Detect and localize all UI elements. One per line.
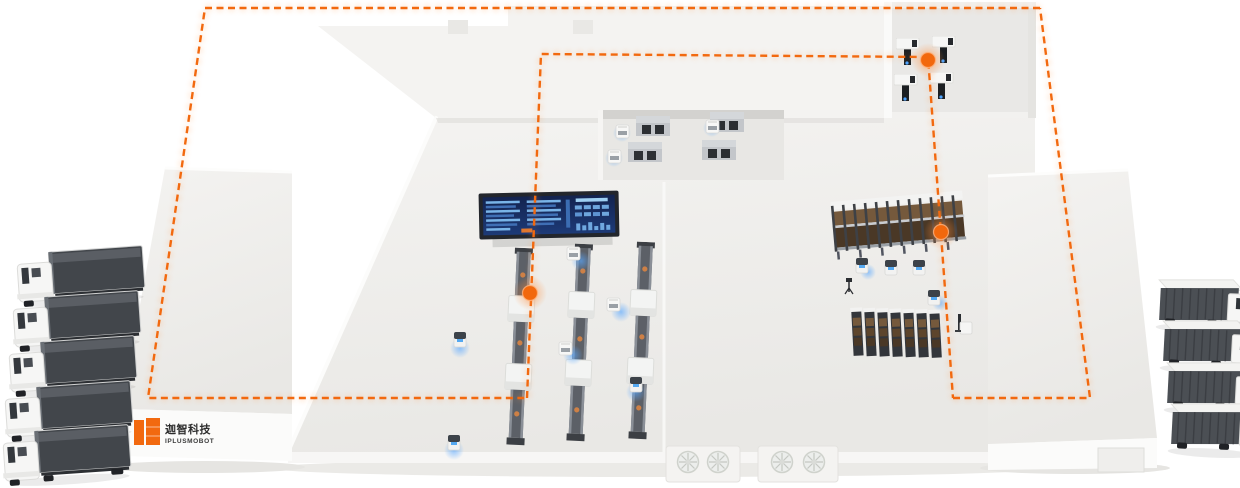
fan-icon xyxy=(678,452,699,473)
route-waypoint-2 xyxy=(911,43,945,77)
amr-robot-4 xyxy=(454,332,466,347)
machining-bay-floor xyxy=(598,110,784,180)
trucks-left xyxy=(0,246,146,488)
roof-unit-2 xyxy=(573,20,593,34)
factory-scene: 迦智科技 IPLUSMOBOT xyxy=(0,0,1240,488)
truck-right-4 xyxy=(1168,400,1240,460)
route-waypoint-3 xyxy=(924,215,958,249)
fan-icon xyxy=(804,452,825,473)
amr-robot-1 xyxy=(567,247,580,260)
amr-robot-9 xyxy=(913,260,925,275)
route-waypoint-1 xyxy=(513,276,547,310)
amr-robot-6 xyxy=(630,377,642,392)
brand-name-en: IPLUSMOBOT xyxy=(165,438,214,445)
floor-front-face xyxy=(288,452,1035,463)
roof-unit-1 xyxy=(448,20,468,34)
bay-machine-4 xyxy=(702,140,736,160)
bay-machine-3 xyxy=(628,142,662,162)
dock-notch xyxy=(1098,448,1144,472)
vent-block-2 xyxy=(758,446,838,482)
amr-robot-7 xyxy=(856,258,868,273)
trucks-right xyxy=(1156,276,1240,460)
fan-icon xyxy=(708,452,729,473)
roof-strip-top xyxy=(318,6,884,118)
amr-robot-10 xyxy=(928,290,940,305)
control-dashboard xyxy=(479,191,620,248)
amr-robot-bay-3 xyxy=(608,150,621,163)
amr-robot-2 xyxy=(607,298,620,311)
brand-mark-icon xyxy=(134,418,160,445)
fan-icon xyxy=(772,452,793,473)
amr-robot-3 xyxy=(559,342,572,355)
amr-robot-bay-1 xyxy=(616,125,629,138)
amr-robot-5 xyxy=(448,435,460,450)
vent-block-1 xyxy=(666,446,740,482)
amr-robot-8 xyxy=(885,260,897,275)
factory-svg: 迦智科技 IPLUSMOBOT xyxy=(0,0,1240,488)
brand-name-cn: 迦智科技 xyxy=(165,422,211,436)
bay-machine-1 xyxy=(636,116,670,136)
right-dock-slab xyxy=(980,170,1170,474)
amr-robot-bay-2 xyxy=(706,120,719,133)
